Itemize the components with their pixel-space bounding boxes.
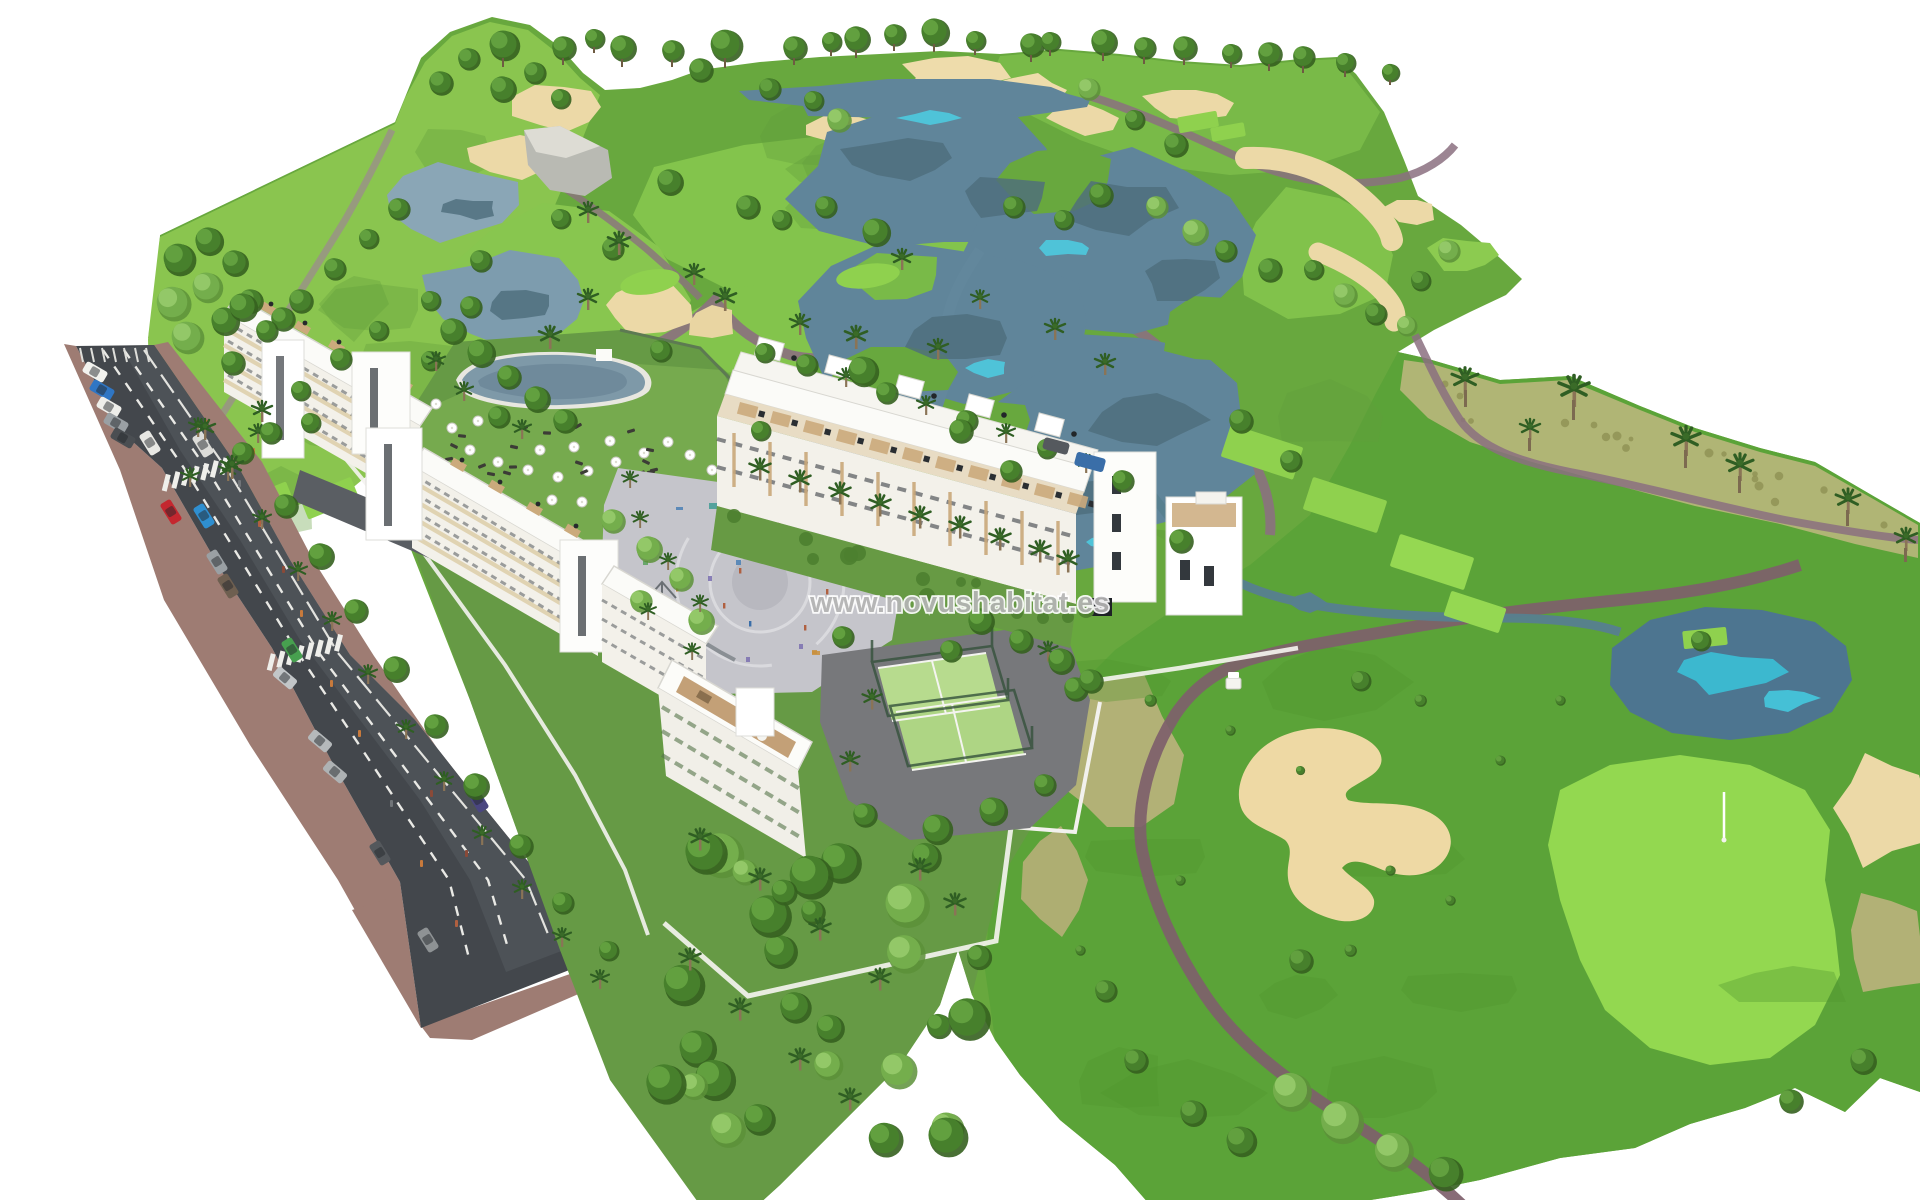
svg-text:www.novushabitat.es: www.novushabitat.es <box>809 587 1110 619</box>
